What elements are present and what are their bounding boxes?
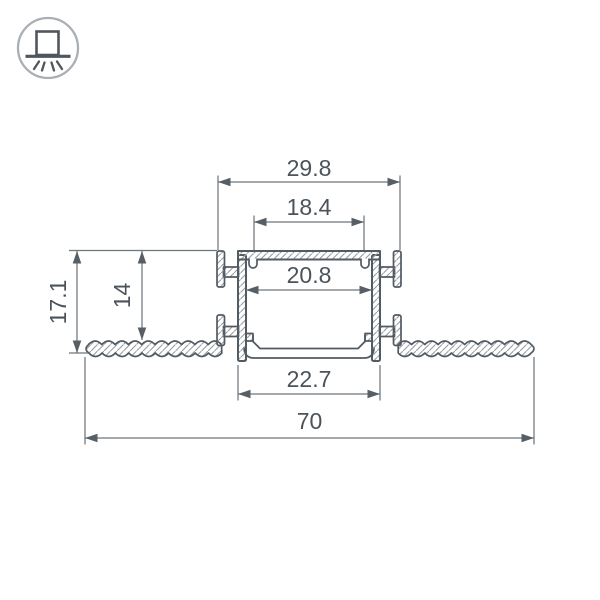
right-lens-ledge bbox=[365, 334, 372, 342]
dim-14: 14 bbox=[109, 251, 146, 340]
right-notch bbox=[361, 259, 369, 269]
dim-label-17-1: 17.1 bbox=[45, 280, 71, 325]
dim-label-20-8: 20.8 bbox=[287, 262, 332, 288]
left-lens-ledge bbox=[246, 334, 253, 342]
dimensions: 29.8 18.4 20.8 17.1 bbox=[45, 155, 534, 445]
lower-left-tab-stem bbox=[224, 327, 239, 337]
right-plaster-flange bbox=[398, 341, 534, 357]
dim-label-22-7: 22.7 bbox=[287, 366, 332, 392]
dim-label-29-8: 29.8 bbox=[287, 155, 332, 181]
left-notch bbox=[249, 259, 257, 269]
upper-right-tab-cap bbox=[394, 251, 402, 287]
dim-label-18-4: 18.4 bbox=[287, 194, 332, 220]
dim-18-4: 18.4 bbox=[254, 194, 364, 250]
lower-left-tab-cap bbox=[217, 315, 225, 346]
right-side-wall bbox=[372, 255, 380, 361]
dim-22-7: 22.7 bbox=[238, 365, 380, 401]
dim-20-8: 20.8 bbox=[246, 262, 372, 294]
top-wall bbox=[238, 251, 380, 260]
upper-left-tab-stem bbox=[224, 267, 239, 277]
upper-right-tab-stem bbox=[380, 267, 395, 277]
drawing-canvas: 29.8 18.4 20.8 17.1 bbox=[0, 0, 600, 600]
diffuser-top bbox=[253, 335, 365, 349]
recessed-light-icon bbox=[18, 18, 78, 78]
dim-17-1: 17.1 bbox=[45, 251, 81, 353]
dim-label-70: 70 bbox=[297, 408, 323, 434]
left-plaster-flange bbox=[86, 341, 222, 357]
upper-left-tab-cap bbox=[217, 251, 225, 287]
lower-right-tab-stem bbox=[380, 327, 395, 337]
lower-right-tab-cap bbox=[394, 315, 402, 346]
dim-label-14: 14 bbox=[109, 283, 135, 309]
icon-circle bbox=[18, 18, 78, 78]
left-side-wall bbox=[238, 255, 246, 361]
